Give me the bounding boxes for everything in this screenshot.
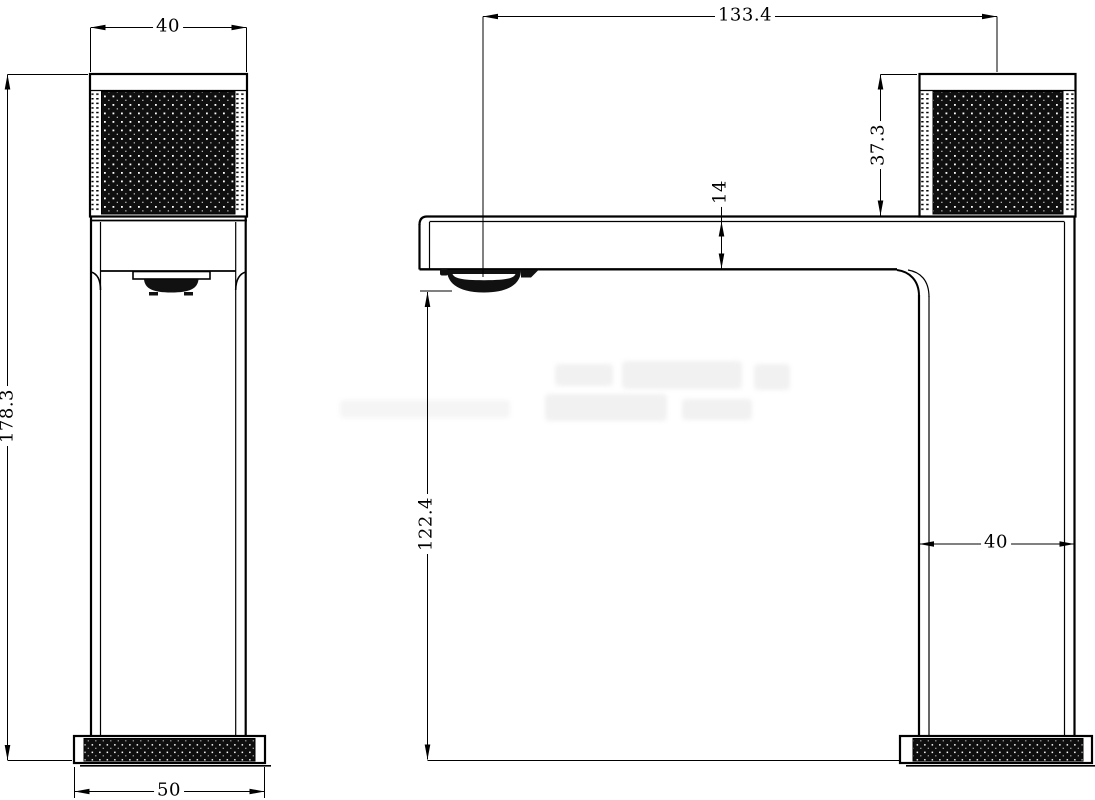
front-underside-fillet-left: [91, 272, 101, 290]
front-handle-knurl: [102, 92, 236, 215]
front-base-knurl: [84, 739, 255, 762]
arrow-up-icon: [5, 75, 11, 90]
front-aerator-foot-right: [184, 292, 193, 296]
dim-label-spout-reach: 133.4: [715, 7, 775, 26]
side-aerator-bowl: [447, 270, 521, 293]
side-base-knurl: [913, 739, 1083, 762]
arrow-right-icon: [232, 25, 247, 31]
front-view: [74, 74, 271, 766]
dim-label-spout-clearance: 122.4: [418, 494, 437, 554]
arrow-up-icon: [878, 75, 884, 90]
side-view: [420, 74, 1095, 766]
front-aerator-dome: [144, 280, 199, 293]
arrow-left-icon: [75, 789, 90, 795]
front-handle-ticks-right: [235, 92, 246, 213]
arrow-left-icon: [919, 541, 934, 547]
side-handle-ticks-left: [921, 92, 931, 213]
dim-label-body-width: 40: [981, 534, 1011, 553]
arrow-down-icon: [5, 745, 11, 760]
arrow-left-icon: [483, 14, 498, 20]
dim-spout-thickness: [719, 206, 725, 269]
side-handle-ticks-right: [1064, 92, 1075, 213]
drawing-sheet: 40 178.3 50 133.4 37.3 14 122.4 40: [0, 0, 1095, 800]
front-handle-ticks-left: [92, 92, 102, 213]
arrow-down-icon: [719, 254, 725, 269]
dim-label-spout-thickness: 14: [712, 177, 731, 207]
side-inner-fillet-outer: [897, 270, 919, 296]
arrow-up-icon: [719, 222, 725, 237]
side-handle-knurl: [933, 92, 1063, 215]
arrow-left-icon: [91, 25, 106, 31]
arrow-up-icon: [425, 292, 431, 307]
arrow-right-icon: [250, 789, 265, 795]
arrow-right-icon: [1060, 541, 1075, 547]
dim-label-handle-height: 37.3: [870, 121, 889, 169]
arrow-down-icon: [425, 745, 431, 760]
arrow-down-icon: [878, 201, 884, 216]
side-aerator-nub: [440, 269, 448, 276]
dim-label-base-width: 50: [154, 782, 184, 800]
front-aerator-foot-left: [149, 292, 158, 296]
side-aerator-step: [521, 270, 539, 278]
dim-spout-clearance: [420, 291, 901, 761]
drawing-canvas: [0, 0, 1095, 800]
front-underside-fillet-right: [236, 272, 246, 290]
arrow-right-icon: [982, 14, 997, 20]
dim-label-handle-width: 40: [153, 18, 183, 37]
dim-label-overall-height: 178.3: [0, 386, 17, 446]
front-aerator-plate: [133, 272, 210, 280]
side-spout-top-line: [420, 217, 1075, 226]
